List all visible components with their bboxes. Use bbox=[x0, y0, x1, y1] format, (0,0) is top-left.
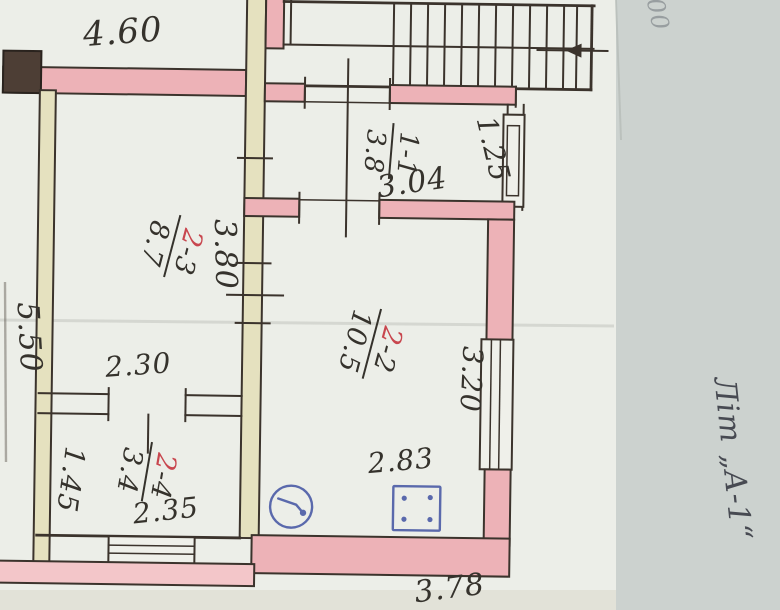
stair-hall-edge bbox=[291, 0, 292, 44]
room-number: 1-1 bbox=[390, 131, 424, 178]
dim-hall-width: 2.83 bbox=[365, 441, 435, 480]
wall-hall-top-right bbox=[379, 200, 514, 220]
bottom-shading bbox=[0, 590, 616, 610]
stair-right-wall bbox=[591, 6, 592, 90]
wall-right-lower bbox=[484, 469, 511, 545]
wall-hall-top-left bbox=[244, 198, 299, 217]
wall-stub-dark bbox=[3, 51, 42, 94]
window-room4-bottom bbox=[108, 536, 194, 565]
floor-plan-svg: 4.60 3.04 1.25 3.80 5.50 2.30 1.45 2.35 … bbox=[0, 0, 780, 610]
wall-corridor-top-left bbox=[265, 83, 305, 102]
left-edge-shadow bbox=[5, 282, 6, 462]
wall-stub-top bbox=[266, 0, 285, 48]
dim-left-side-height: 5.50 bbox=[9, 301, 48, 374]
room-area: 3.8 bbox=[357, 128, 391, 175]
wall-right-upper bbox=[486, 219, 514, 341]
dim-living-room-depth: 3.80 bbox=[207, 219, 243, 291]
dim-top-width: 4.60 bbox=[81, 9, 164, 55]
wall-bottom-left-band bbox=[0, 561, 254, 587]
door-leaf-line bbox=[148, 415, 149, 453]
dim-hall-right-depth: 3.20 bbox=[453, 346, 489, 414]
dim-living-room-width: 2.30 bbox=[103, 346, 173, 384]
wall-corridor-top-right bbox=[390, 85, 516, 105]
window-frame bbox=[108, 536, 194, 565]
scanned-floor-plan-photo: 4.60 3.04 1.25 3.80 5.50 2.30 1.45 2.35 … bbox=[0, 0, 780, 610]
